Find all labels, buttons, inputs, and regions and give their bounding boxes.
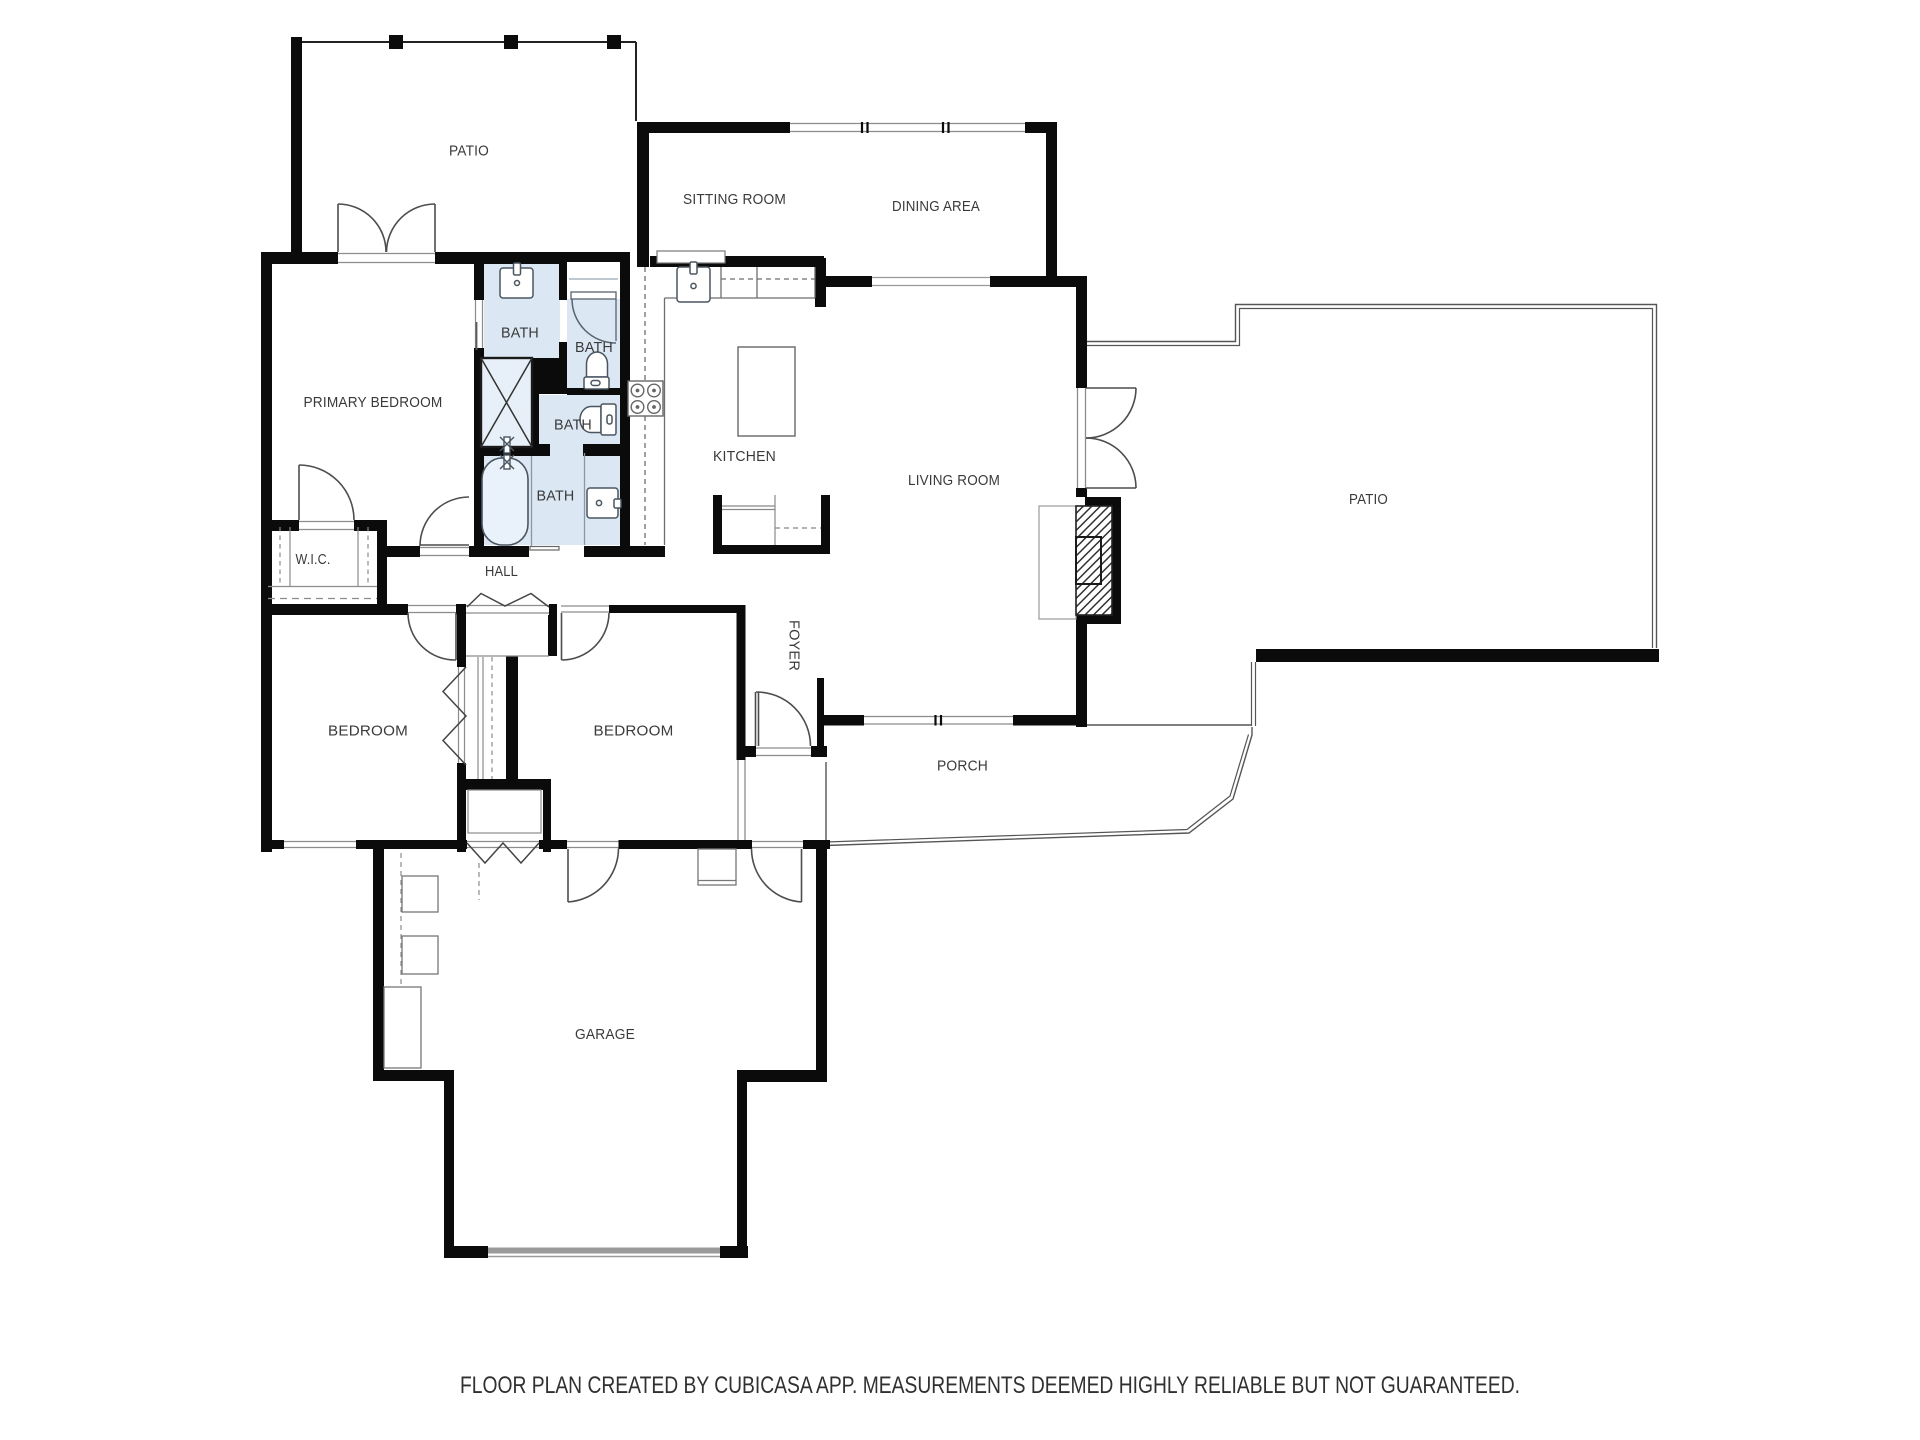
svg-text:FOYER: FOYER <box>786 620 802 671</box>
svg-text:FLOOR PLAN CREATED BY CUBICASA: FLOOR PLAN CREATED BY CUBICASA APP. MEAS… <box>460 1372 1520 1399</box>
svg-text:HALL: HALL <box>485 564 518 580</box>
svg-text:PATIO: PATIO <box>1349 492 1388 508</box>
svg-text:PATIO: PATIO <box>449 144 489 160</box>
svg-text:PORCH: PORCH <box>937 759 988 775</box>
svg-text:W.I.C.: W.I.C. <box>296 552 331 568</box>
svg-text:BEDROOM: BEDROOM <box>594 724 674 740</box>
svg-text:PRIMARY BEDROOM: PRIMARY BEDROOM <box>304 395 443 411</box>
svg-text:BATH: BATH <box>575 340 613 356</box>
svg-text:BATH: BATH <box>554 418 592 434</box>
svg-text:DINING AREA: DINING AREA <box>892 199 980 215</box>
svg-text:SITTING ROOM: SITTING ROOM <box>683 192 786 208</box>
svg-text:GARAGE: GARAGE <box>575 1027 635 1043</box>
svg-text:BEDROOM: BEDROOM <box>328 724 408 740</box>
svg-text:BATH: BATH <box>501 326 539 342</box>
svg-text:BATH: BATH <box>537 489 575 505</box>
svg-text:KITCHEN: KITCHEN <box>713 449 776 465</box>
svg-text:LIVING ROOM: LIVING ROOM <box>908 473 1000 489</box>
